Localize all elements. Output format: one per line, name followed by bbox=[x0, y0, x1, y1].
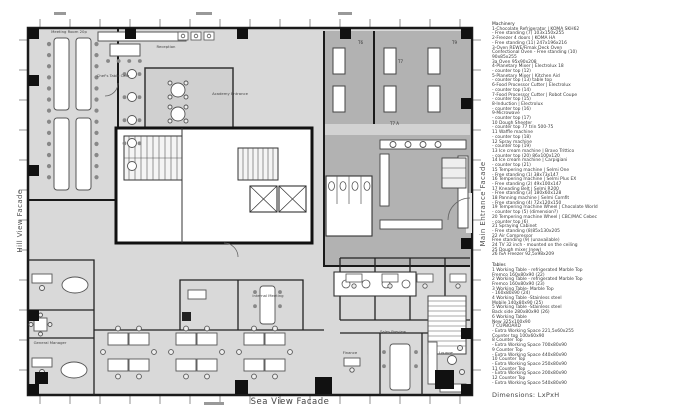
room-label-internal-meeting: Internal Meeting bbox=[240, 294, 296, 298]
wc-block bbox=[326, 176, 372, 236]
legend-line: - Extra Working Space 540x80x90 bbox=[492, 382, 694, 387]
room-label-sales: Sales Preview bbox=[368, 330, 418, 334]
dimensions-note: Dimensions: LxPxH bbox=[492, 391, 559, 399]
table-label-t7a: T7 A bbox=[389, 121, 399, 126]
room-label-general-manager: General Manager bbox=[32, 341, 68, 345]
table-label-t9: T9 bbox=[451, 40, 457, 45]
facade-label-main-entrance: Main Entrance Facade bbox=[479, 159, 487, 249]
stairwell-2 bbox=[238, 148, 278, 180]
room-label-finance: Finance bbox=[336, 351, 364, 355]
room-label-academy: Academy Entrance bbox=[200, 92, 260, 96]
floorplan-screenshot: T6 T9 T7 T7 A Meeting Room 20p Reception… bbox=[0, 0, 700, 420]
room-label-lounge: Lounge bbox=[432, 351, 460, 355]
legend-tables-list: 1 Working Table - refrigerated Marble To… bbox=[492, 269, 694, 387]
table-label-t7: T7 bbox=[397, 59, 403, 64]
legend-machinery-list: 1-Chocolate Refrigerator | KOMA SKH62- F… bbox=[492, 28, 694, 258]
legend-line: 26 ISA Freezer 92,5x98x209 bbox=[492, 253, 694, 258]
room-label-cafe: Chef's Table Cafe bbox=[96, 74, 130, 78]
equipment-legend: Machinery 1-Chocolate Refrigerator | KOM… bbox=[492, 23, 694, 386]
facade-label-hill-view: Hill View Facade bbox=[16, 181, 24, 261]
vip-room bbox=[145, 68, 233, 128]
facade-label-sea-view: Sea View Facade bbox=[225, 397, 355, 407]
display-cases bbox=[178, 32, 214, 40]
room-label-meeting: Meeting Room 20p bbox=[44, 30, 94, 34]
table-label-t6: T6 bbox=[357, 40, 363, 45]
room-label-reception: Reception bbox=[146, 45, 186, 49]
